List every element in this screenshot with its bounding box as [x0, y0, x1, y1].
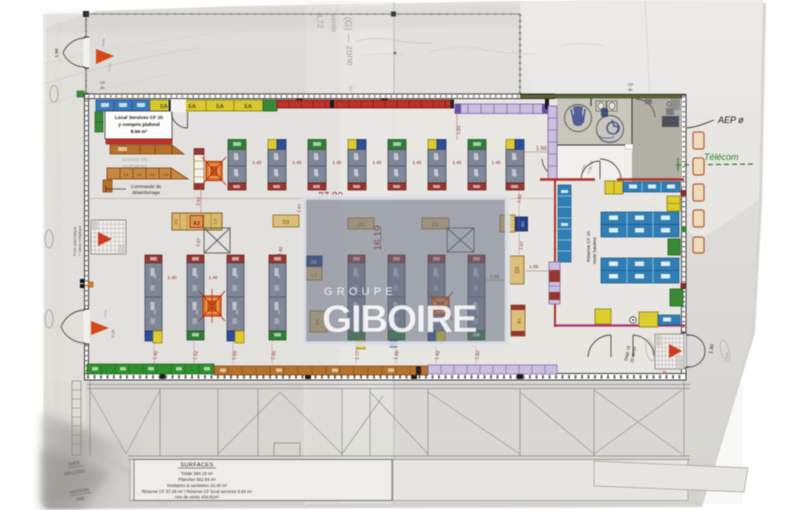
svg-text:y compris plafond: y compris plafond [118, 122, 159, 128]
svg-text:vente: vente [101, 38, 106, 47]
svg-text:Télécom: Télécom [704, 152, 739, 162]
svg-text:1.65: 1.65 [529, 264, 539, 270]
svg-text:Aire de vente 439.81m²: Aire de vente 439.81m² [175, 495, 220, 500]
svg-text:1.40: 1.40 [293, 160, 302, 165]
svg-text:1.40: 1.40 [413, 160, 422, 165]
svg-text:1.40: 1.40 [453, 160, 462, 165]
svg-text:1.40: 1.40 [168, 275, 177, 280]
svg-text:Plancher 562.84 m²: Plancher 562.84 m² [178, 477, 216, 482]
svg-text:1.62: 1.62 [456, 125, 461, 134]
svg-text:D3: D3 [283, 220, 290, 226]
svg-text:AEP ø: AEP ø [717, 115, 744, 125]
svg-text:C1: C1 [136, 172, 142, 177]
svg-text:A1: A1 [436, 156, 440, 160]
svg-text:toute hauteur: toute hauteur [592, 236, 597, 264]
svg-text:1.40: 1.40 [209, 275, 218, 280]
svg-text:CAISSE DE: CAISSE DE [122, 157, 148, 163]
svg-text:3,72: 3,72 [315, 13, 325, 30]
svg-text:D3: D3 [515, 267, 521, 274]
svg-text:Totale 584.15 m²: Totale 584.15 m² [181, 471, 214, 476]
svg-text:A1: A1 [476, 173, 480, 177]
svg-text:1.50: 1.50 [536, 146, 547, 152]
svg-text:Commande de: Commande de [131, 184, 162, 189]
svg-text:A1: A1 [236, 156, 240, 160]
svg-text:A1: A1 [476, 156, 480, 160]
svg-text:1.94: 1.94 [54, 48, 59, 57]
svg-text:Réserve CF 57.29 m² / Réserve: Réserve CF 57.29 m² / Réserve CF local s… [142, 489, 253, 494]
svg-text:A1: A1 [316, 173, 320, 177]
svg-text:D1: D1 [174, 218, 179, 224]
svg-text:B.L: B.L [517, 317, 522, 324]
svg-text:Local Services CF 1h: Local Services CF 1h [115, 115, 163, 121]
svg-text:GROUPE: GROUPE [324, 286, 397, 298]
svg-text:A1: A1 [277, 274, 281, 278]
svg-text:8.94 m²: 8.94 m² [131, 129, 148, 135]
svg-text:A1: A1 [277, 310, 281, 314]
svg-text:+ rideau métallique: + rideau métallique [78, 226, 82, 256]
svg-text:1.40: 1.40 [333, 160, 342, 165]
svg-text:Porte automatique: Porte automatique [73, 227, 77, 256]
svg-text:3h: 3h [628, 87, 632, 92]
svg-text:EA: EA [160, 104, 168, 110]
svg-text:b≡: b≡ [347, 86, 353, 92]
svg-text:3h: 3h [662, 370, 667, 375]
svg-text:1.40: 1.40 [492, 160, 501, 165]
svg-text:A1: A1 [236, 173, 240, 177]
svg-text:C1: C1 [149, 172, 155, 177]
svg-text:A1: A1 [276, 156, 280, 160]
svg-text:EA: EA [244, 104, 252, 110]
svg-text:1.40: 1.40 [373, 160, 382, 165]
svg-text:GIBOIRE: GIBOIRE [322, 298, 477, 341]
svg-text:A1: A1 [153, 310, 157, 314]
svg-text:vente: vente [329, 14, 339, 33]
svg-text:Accès: Accès [107, 62, 112, 72]
svg-text:A1: A1 [235, 274, 239, 278]
svg-text:1.40: 1.40 [253, 160, 262, 165]
svg-text:A1: A1 [396, 156, 400, 160]
svg-text:A1: A1 [396, 173, 400, 177]
svg-text:1.0: 1.0 [213, 218, 218, 224]
svg-text:3h: 3h [100, 85, 104, 90]
svg-text:A1: A1 [195, 310, 199, 314]
svg-text:A1: A1 [514, 156, 518, 160]
svg-text:3 UP: 3 UP [111, 329, 116, 338]
svg-text:C0: C0 [163, 172, 169, 177]
svg-text:A1: A1 [514, 173, 518, 177]
svg-text:D2: D2 [520, 221, 525, 227]
svg-text:A1: A1 [276, 173, 280, 177]
svg-text:A1: A1 [153, 274, 157, 278]
svg-text:A1: A1 [356, 156, 360, 160]
svg-text:Vestiaires & sanitaires 23.40: Vestiaires & sanitaires 23.40 m² [167, 483, 228, 488]
svg-text:A1: A1 [195, 274, 199, 278]
svg-text:désenfumage: désenfumage [132, 190, 160, 195]
svg-text:A1: A1 [356, 173, 360, 177]
svg-text:EA: EA [188, 104, 196, 110]
svg-text:A1: A1 [436, 173, 440, 177]
svg-text:vente: vente [103, 309, 108, 318]
svg-text:SURFACES: SURFACES [180, 463, 213, 469]
svg-text:A2: A2 [193, 221, 200, 227]
svg-text:EA: EA [216, 104, 224, 110]
svg-text:A1: A1 [235, 310, 239, 314]
svg-text:Réserve CF 1h: Réserve CF 1h [586, 231, 591, 262]
svg-text:A1: A1 [316, 156, 320, 160]
svg-text:C1: C1 [123, 172, 129, 177]
